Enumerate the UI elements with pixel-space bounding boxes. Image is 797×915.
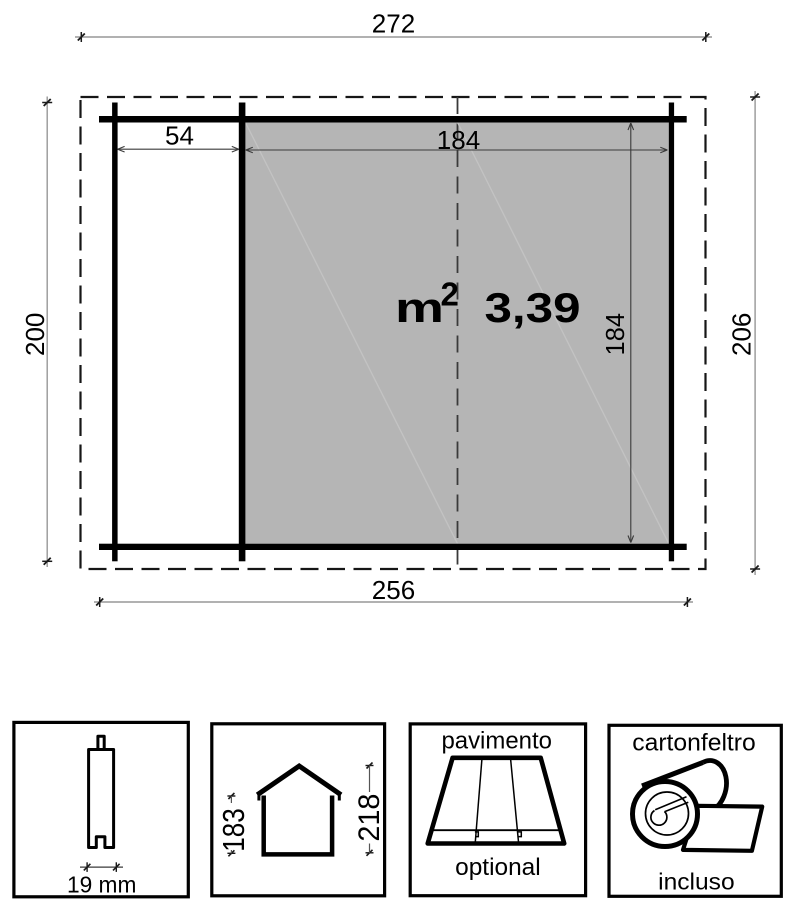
svg-text:206: 206 bbox=[727, 313, 757, 356]
svg-text:272: 272 bbox=[372, 9, 415, 39]
svg-text:256: 256 bbox=[372, 575, 415, 605]
svg-text:19 mm: 19 mm bbox=[67, 871, 137, 897]
svg-text:optional: optional bbox=[455, 854, 541, 881]
svg-text:2: 2 bbox=[441, 276, 459, 313]
svg-text:incluso: incluso bbox=[658, 869, 735, 895]
svg-text:183: 183 bbox=[216, 808, 251, 852]
svg-text:cartonfeltro: cartonfeltro bbox=[632, 730, 756, 757]
svg-text:3,39: 3,39 bbox=[485, 284, 581, 331]
svg-text:184: 184 bbox=[437, 125, 480, 155]
svg-text:m: m bbox=[395, 284, 444, 331]
svg-text:218: 218 bbox=[353, 794, 386, 842]
svg-text:200: 200 bbox=[20, 313, 50, 356]
svg-text:pavimento: pavimento bbox=[441, 728, 552, 755]
svg-text:184: 184 bbox=[600, 313, 630, 356]
svg-text:54: 54 bbox=[165, 121, 194, 151]
